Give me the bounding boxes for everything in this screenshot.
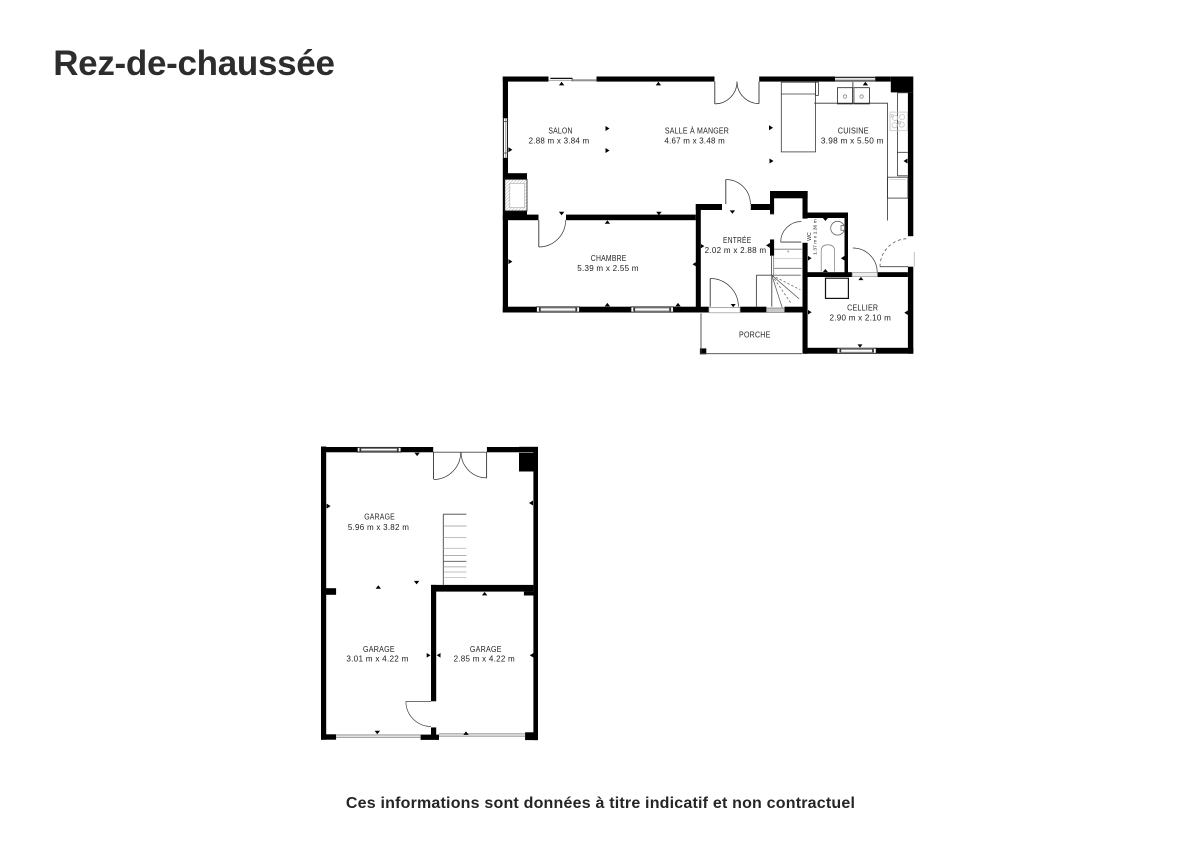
svg-text:2.02 m x 2.88 m: 2.02 m x 2.88 m: [705, 246, 767, 255]
svg-text:ENTRÉE: ENTRÉE: [723, 236, 751, 245]
svg-text:WC: WC: [807, 232, 813, 241]
svg-text:2.88 m x 3.84 m: 2.88 m x 3.84 m: [529, 137, 590, 146]
svg-text:Ces informations sont données: Ces informations sont données à titre in…: [346, 795, 855, 812]
svg-text:1.37 m x 1.36 m: 1.37 m x 1.36 m: [813, 219, 819, 255]
svg-text:CUISINE: CUISINE: [838, 127, 869, 136]
svg-text:PORCHE: PORCHE: [739, 330, 771, 339]
svg-text:SALLE À MANGER: SALLE À MANGER: [665, 127, 729, 136]
svg-text:SALON: SALON: [548, 127, 572, 136]
svg-text:CELLIER: CELLIER: [847, 303, 878, 312]
svg-text:GARAGE: GARAGE: [470, 645, 502, 654]
svg-text:Rez-de-chaussée: Rez-de-chaussée: [53, 44, 334, 83]
svg-text:3.01 m x 4.22 m: 3.01 m x 4.22 m: [346, 655, 408, 664]
svg-text:GARAGE: GARAGE: [363, 645, 395, 654]
svg-text:GARAGE: GARAGE: [364, 513, 395, 522]
svg-text:5.39 m x 2.55 m: 5.39 m x 2.55 m: [577, 264, 639, 273]
svg-text:5.96 m x 3.82 m: 5.96 m x 3.82 m: [348, 523, 409, 532]
svg-text:CHAMBRE: CHAMBRE: [591, 254, 627, 263]
svg-text:4.67 m x 3.48 m: 4.67 m x 3.48 m: [664, 137, 725, 146]
svg-text:3.98 m x 5.50 m: 3.98 m x 5.50 m: [821, 137, 884, 146]
svg-text:2.85 m x 4.22 m: 2.85 m x 4.22 m: [454, 655, 515, 664]
svg-text:2.90 m x 2.10 m: 2.90 m x 2.10 m: [830, 313, 892, 322]
